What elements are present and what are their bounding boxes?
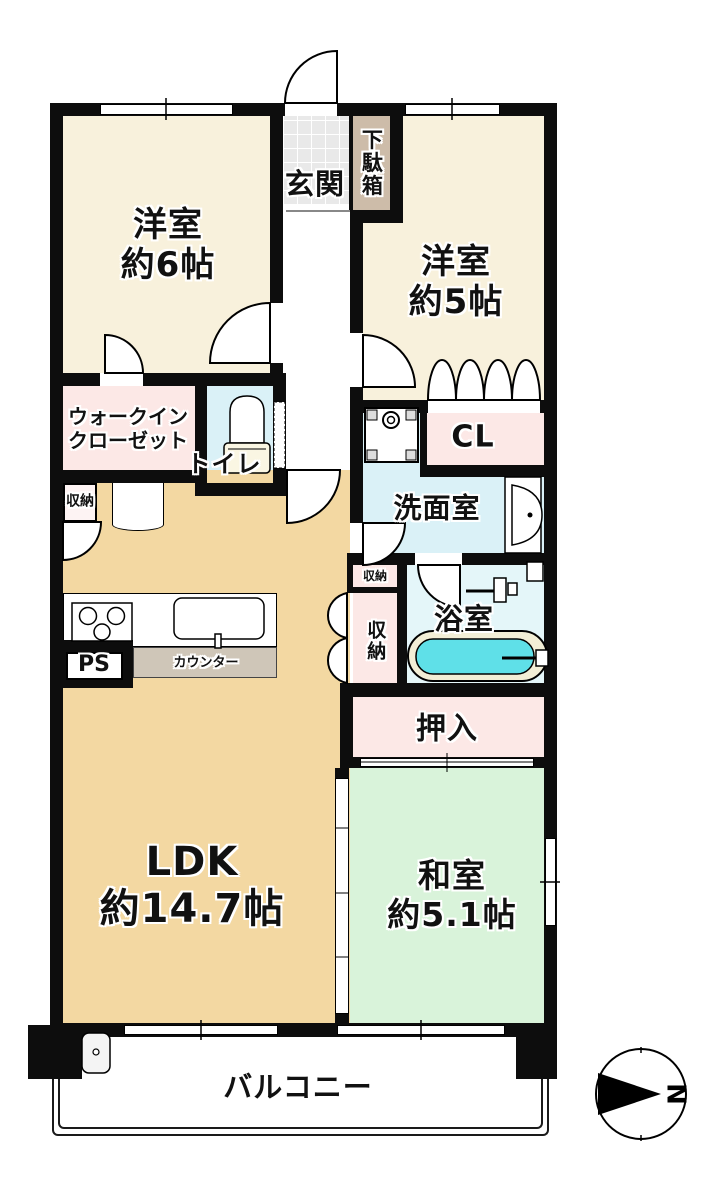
wall <box>420 465 544 477</box>
wall <box>340 683 557 697</box>
entrance-door-arc <box>285 51 337 103</box>
label-counter: カウンター <box>173 655 238 670</box>
window-top-left <box>100 104 233 115</box>
room-ldk <box>63 470 350 1023</box>
washitsu-sliding-door <box>335 778 349 1014</box>
door-opening <box>350 333 363 387</box>
label-wic: ウォークイン クローゼット <box>68 405 188 452</box>
door-opening <box>100 373 143 386</box>
sliding-track-stub <box>335 1014 349 1023</box>
balcony-pillar-right <box>516 1025 557 1079</box>
label-oshiire: 押入 <box>416 711 478 746</box>
hallway <box>286 213 350 470</box>
label-storage-mid: 収納 <box>363 569 387 583</box>
label-storage-left: 収納 <box>66 494 94 511</box>
label-ldk: LDK 約14.7帖 <box>100 839 285 933</box>
label-toilet: トイレ <box>187 450 262 478</box>
entrance-opening <box>285 103 337 116</box>
label-western5: 洋室 約5帖 <box>409 242 504 322</box>
wall <box>390 103 403 223</box>
wall <box>50 373 283 386</box>
door-opening <box>350 523 363 553</box>
label-storage-tall: 収納 <box>364 620 386 662</box>
wall <box>195 483 286 496</box>
sliding-track-stub <box>335 768 349 778</box>
label-western6: 洋室 約6帖 <box>121 205 216 285</box>
kitchen-counter <box>63 593 277 647</box>
window-bottom-washitsu <box>337 1025 505 1035</box>
door-opening <box>270 303 283 363</box>
wall <box>397 553 407 695</box>
label-genkan: 玄関 <box>285 167 345 201</box>
open-door-leaf <box>112 477 164 531</box>
window-top-right <box>405 104 500 115</box>
closet-opening <box>428 400 540 413</box>
wall <box>50 470 207 483</box>
wall <box>350 210 403 223</box>
room-western5-upper <box>403 116 544 223</box>
label-getabako: 下駄箱 <box>359 129 384 198</box>
compass-icon: N <box>596 1047 691 1141</box>
door-opening <box>415 553 462 565</box>
window-right-washitsu <box>545 838 556 926</box>
wall <box>273 373 286 496</box>
wall-left <box>50 103 63 1037</box>
wall <box>349 116 353 210</box>
wall <box>350 400 363 523</box>
label-ps: PS <box>78 652 110 678</box>
label-washitsu: 和室 約5.1帖 <box>387 857 516 935</box>
window-bottom-ldk <box>124 1025 278 1035</box>
wall <box>353 587 397 593</box>
label-balcony: バルコニー <box>223 1070 372 1104</box>
floorplan-canvas: N 洋室 約6帖 洋室 約5帖 玄関 下駄箱 ウォークイン クローゼット トイレ… <box>0 0 710 1188</box>
balcony-pillar-left <box>28 1025 82 1079</box>
label-bathroom: 浴室 <box>434 602 494 636</box>
label-washroom: 洗面室 <box>393 491 480 524</box>
label-cl: CL <box>451 419 494 454</box>
oshiire-sliding-door <box>360 758 534 767</box>
compass-north-label: N <box>661 1083 691 1105</box>
